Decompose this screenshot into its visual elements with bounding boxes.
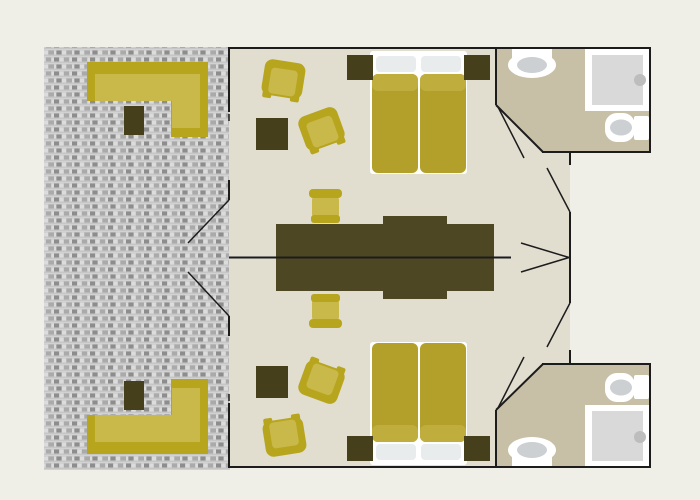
side-table-top <box>256 118 288 150</box>
nightstand-bottom-left <box>347 436 373 461</box>
sheet-band <box>372 74 418 91</box>
armchair-top-1 <box>260 58 307 103</box>
toilet-top <box>605 113 649 142</box>
nightstand-top-left <box>347 55 373 80</box>
floor-plan <box>0 0 700 500</box>
armchair-bottom-2 <box>261 413 308 458</box>
shower-bottom <box>585 405 650 467</box>
deck-table-top <box>124 106 144 135</box>
floor-plan-canvas <box>0 0 700 500</box>
pillow <box>420 443 462 461</box>
nightstand-bottom-right <box>464 436 490 461</box>
shower-top <box>585 49 650 111</box>
pillow <box>375 55 417 73</box>
shower-knob <box>634 74 646 86</box>
double-bed-bottom <box>370 342 467 465</box>
shower-knob <box>634 431 646 443</box>
washbasin-bottom <box>508 437 556 467</box>
nightstand-top-right <box>464 55 490 80</box>
sheet-band <box>372 425 418 442</box>
double-bed-top <box>370 51 467 174</box>
deck-table-bottom <box>124 381 144 410</box>
toilet-bottom <box>605 373 649 402</box>
toilet-tank <box>634 116 649 140</box>
pillow <box>375 443 417 461</box>
dining-chair-top <box>309 189 342 223</box>
toilet-seat <box>610 120 632 136</box>
toilet-tank <box>634 375 649 399</box>
washbasin-top <box>508 48 556 78</box>
sheet-band <box>420 425 466 442</box>
side-table-bottom <box>256 366 288 398</box>
toilet-seat <box>610 380 632 396</box>
sheet-band <box>420 74 466 91</box>
dining-chair-bottom <box>309 294 342 328</box>
pillow <box>420 55 462 73</box>
